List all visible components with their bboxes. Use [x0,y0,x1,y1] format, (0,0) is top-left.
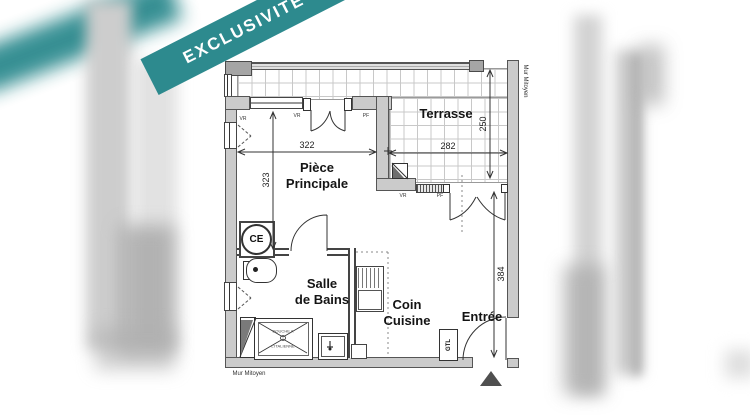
party-wall-label-right: Mur Mitoyen [522,64,528,97]
dim-main-depth: 323 [261,172,271,187]
water-heater-label: CE [250,234,264,245]
exclusivity-banner-text: EXCLUSIVITÉ [180,0,308,68]
opening-label-vr-top: VR [294,113,301,119]
room-label-kitchen-line1: Coin [384,297,431,313]
water-heater-circle: CE [241,224,272,255]
french-door-jamb-left [303,98,311,111]
terrace-column [392,163,408,179]
room-label-bath-line1: Salle [295,276,349,292]
main-room-left-window [224,122,237,149]
party-wall-right-lower [507,358,519,368]
opening-label-vr-terrace: VR [400,193,407,199]
toilet [246,258,277,283]
technical-duct-label: GTL [446,339,452,351]
room-label-main: Pièce Principale [286,160,348,193]
dim-main-width: 322 [299,140,314,150]
terrace-railing [250,62,470,70]
utility-box [351,344,367,359]
main-room-top-wall-a [225,96,250,110]
room-label-entry: Entrée [462,309,502,325]
room-label-kitchen: Coin Cuisine [384,297,431,330]
room-label-terrace: Terrasse [419,106,472,122]
opening-label-pf-top: PF [363,113,369,119]
main-room-top-window [250,97,303,109]
bg-blur-right-6 [725,350,750,378]
room-label-main-line1: Pièce [286,160,348,176]
room-label-bath: Salle de Bains [295,276,349,309]
kitchen-drainboard [358,268,380,288]
shower-tray-inner [258,322,309,356]
hand-basin-inner [321,336,345,357]
shower-label-line2: L'ITALIENNE [271,344,294,349]
party-wall-label-bottom: Mur Mitoyen [232,371,265,377]
bathroom-kitchen-wall [348,248,356,358]
french-door-jamb-right [344,98,352,111]
main-terrace-wall [376,96,389,182]
technical-duct-box: GTL [439,329,458,361]
room-label-bath-line2: de Bains [295,292,349,308]
kitchen-sink [358,290,382,310]
bg-blur-right-4 [638,45,664,105]
dim-terrace-depth: 250 [478,116,488,131]
bg-blur-left-4 [95,328,175,370]
dim-entry-depth: 384 [496,266,506,281]
real-estate-floorplan-image: { "banner": { "text": "EXCLUSIVITÉ", "co… [0,0,750,420]
room-label-kitchen-line2: Cuisine [384,313,431,329]
corner-block-top-right [469,60,484,72]
opening-label-pf-terrace: PF [437,193,443,199]
terrace-door-jamb-right [501,184,508,193]
entrance-marker-triangle [480,371,502,386]
terrace-left-window [224,74,232,97]
toilet-flush-dot [253,267,258,272]
terrace-bottom-wall [376,178,416,191]
terrace-door-jamb-left [443,184,450,193]
party-wall-right-upper [507,60,519,318]
bg-blur-right-5 [563,265,605,395]
terrace-wall-shutter-window [416,184,445,193]
opening-label-vr-left: VR [240,116,247,122]
shower-label-line1: DOUCHE A [273,329,294,334]
room-label-main-line2: Principale [286,176,348,192]
dim-terrace-width: 282 [440,141,455,151]
bathroom-left-window [224,282,237,311]
